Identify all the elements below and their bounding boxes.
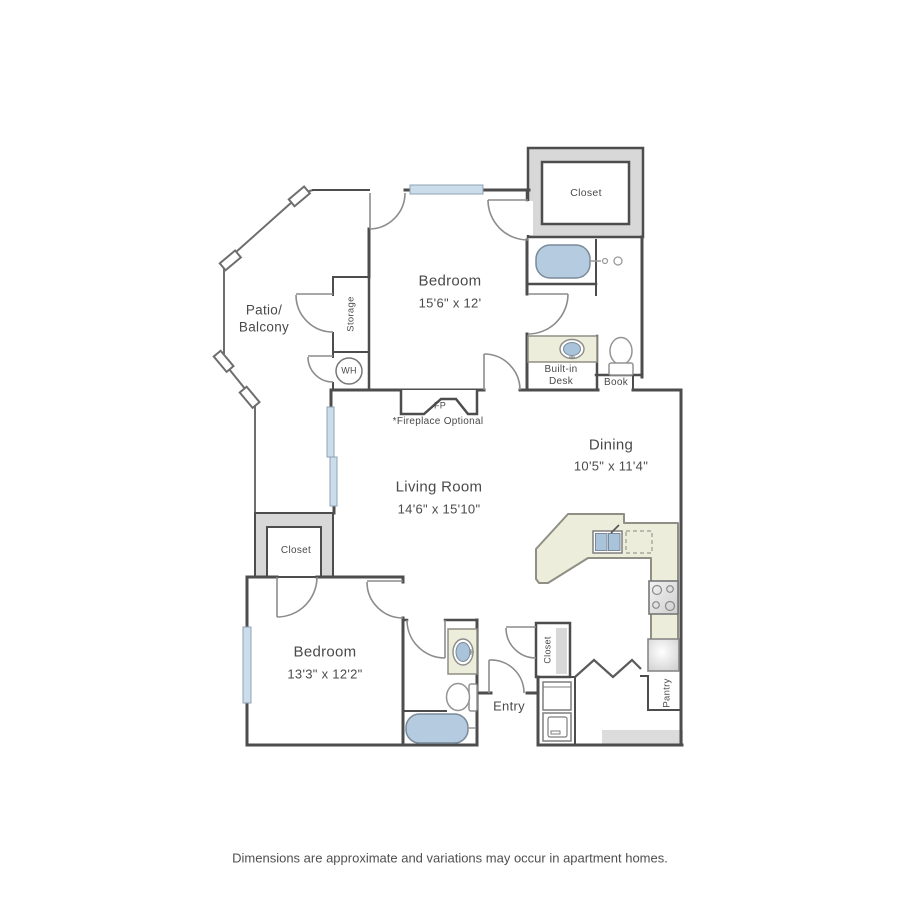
entry-closet-label: Closet [544,636,553,663]
toilet-master [610,338,632,365]
shower-head-icon [614,257,622,265]
disclaimer-text: Dimensions are approximate and variation… [232,851,668,866]
living-window-upper [327,407,334,457]
refrigerator [648,639,679,671]
bedroom1-name: Bedroom [419,274,482,289]
windows [243,185,483,703]
bathtub2 [406,714,468,743]
water-heater-label: WH [341,367,357,376]
bedroom2-window [243,627,251,703]
living-room-name: Living Room [396,480,483,495]
bath2-sink-basin [456,643,470,662]
bedroom2-closet-label: Closet [281,546,311,556]
living-window-lower [330,457,337,506]
dryer-handle [551,731,560,734]
fireplace-label: FP [434,402,446,411]
bedroom2-name: Bedroom [294,645,357,660]
sink-basin-left [596,534,608,551]
entry-label: Entry [493,700,525,713]
toilet2 [447,684,470,711]
living-room-dims: 14'6" x 15'10" [398,503,481,516]
floorplan-drawing [0,0,900,900]
master-bath [528,245,633,375]
entry-closet-back [556,628,567,674]
dining-dims: 10'5" x 11'4" [574,460,648,473]
laundry [543,682,571,741]
book-label: Book [604,378,628,388]
patio-label-line2: Balcony [239,320,289,334]
built-in-desk-label-line2: Desk [549,377,573,387]
toilet-master-tank [609,363,633,375]
washer [543,682,571,710]
patio-label-line1: Patio/ [246,303,282,317]
faucet-knob [603,259,608,264]
pantry-label: Pantry [662,678,672,707]
bedroom2-dims: 13'3" x 12'2" [287,668,362,681]
dining-name: Dining [589,438,633,453]
desk-sink-basin [564,343,581,356]
storage-label: Storage [346,296,356,331]
master-closet-door-gap [524,201,533,235]
master-closet-label: Closet [570,188,602,199]
entry-stoop [602,730,683,745]
fireplace-note: *Fireplace Optional [393,417,484,427]
sink-basin-right [609,534,621,551]
floorplan: Bedroom 15'6" x 12' Patio/ Balcony Stora… [0,0,900,900]
zigzag-break-line [575,660,641,677]
bedroom1-dims: 15'6" x 12' [419,297,482,310]
bedroom1-window [410,185,483,194]
bathtub-master [536,245,590,278]
built-in-desk-label-line1: Built-in [545,365,578,375]
doors [277,193,568,693]
patio-railing [214,187,313,513]
